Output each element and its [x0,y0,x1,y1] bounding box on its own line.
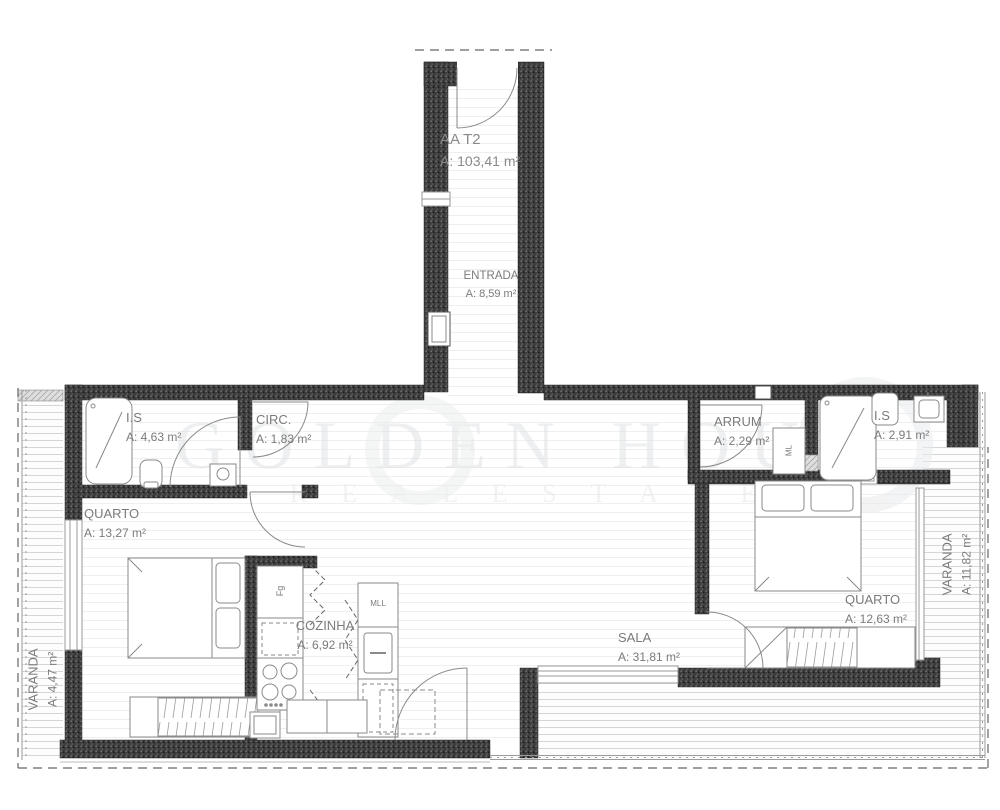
wall-corridor-right [518,62,544,393]
shower [820,396,876,480]
entrada-name: ENTRADA [448,268,534,286]
wall-bottom-left [60,740,490,758]
washer-label: ML [785,437,794,465]
quarto-right-window [916,488,924,660]
arrum-area: A: 2,29 m² [714,432,769,451]
quarto-right-area: A: 12,63 m² [845,610,907,629]
floor-plan-drawing: GOLDEN HOUR R E A L E S T A T E [0,0,1000,810]
wall-arrum-west [688,398,700,480]
room-label-is-left: I.S A: 4,63 m² [126,408,181,447]
sink-left [210,464,236,486]
varanda-right-area: A: 11,82 m² [958,499,977,629]
wall-south-quarto-right [678,668,940,687]
is-right-name: I.S [874,406,929,426]
is-left-name: I.S [126,408,181,428]
plan-title-name: AA T2 [440,128,520,151]
arrum-name: ARRUM [714,412,769,432]
cozinha-area: A: 6,92 m² [285,636,365,655]
sala-name: SALA [618,628,680,648]
quarto-right-name: QUARTO [845,590,907,610]
quarto-left-name: QUARTO [84,504,146,524]
circ-name: CIRC. [256,410,311,430]
wall-is-right-east [947,395,962,447]
room-label-cozinha: COZINHA A: 6,92 m² [285,616,365,655]
entrada-area: A: 8,59 m² [448,286,534,303]
wardrobe-right [745,627,915,668]
wall-corridor-top [424,62,457,86]
varanda-left-name: VARANDA [24,624,44,734]
varanda-left-area: A: 4,47 m² [44,624,63,734]
room-label-sala: SALA A: 31,81 m² [618,628,680,667]
room-label-quarto-right: QUARTO A: 12,63 m² [845,590,907,629]
room-label-circ: CIRC. A: 1,83 m² [256,410,311,449]
bed-right [755,481,861,591]
bed-left [128,558,245,658]
fridge-label: Fg [275,577,285,605]
varanda-right-name: VARANDA [938,499,958,629]
floor-plan-page: GOLDEN HOUR R E A L E S T A T E [0,0,1000,810]
quarto-left-window [65,520,82,650]
toilet-left [140,460,162,488]
room-label-arrum: ARRUM A: 2,29 m² [714,412,769,451]
wall-vent [755,386,771,399]
is-right-area: A: 2,91 m² [874,426,929,445]
room-label-is-right: I.S A: 2,91 m² [874,406,929,445]
wall-quarto-right-west [695,484,709,614]
cozinha-name: COZINHA [285,616,365,636]
sala-sliding-door [538,666,678,683]
is-left-area: A: 4,63 m² [126,428,181,447]
wall-varanda-left-top [18,390,63,401]
wall-pier [520,668,538,758]
electrical-panel [428,312,450,346]
quarto-left-area: A: 13,27 m² [84,524,146,543]
wall-right-upper [962,385,978,447]
room-label-quarto-left: QUARTO A: 13,27 m² [84,504,146,543]
plan-title-area: A: 103,41 m² [440,151,520,173]
room-label-varanda-left: VARANDA A: 4,47 m² [24,624,63,734]
entry-door-opening [457,60,518,86]
terrace-deck [538,687,985,758]
room-label-varanda-right: VARANDA A: 11,82 m² [938,499,977,629]
room-label-entrada: ENTRADA A: 8,59 m² [448,268,534,303]
dishwasher-label: MLL [364,599,392,608]
plan-title: AA T2 A: 103,41 m² [440,128,520,173]
sala-area: A: 31,81 m² [618,648,680,667]
wall-is-left-south [77,485,247,498]
circ-area: A: 1,83 m² [256,430,311,449]
